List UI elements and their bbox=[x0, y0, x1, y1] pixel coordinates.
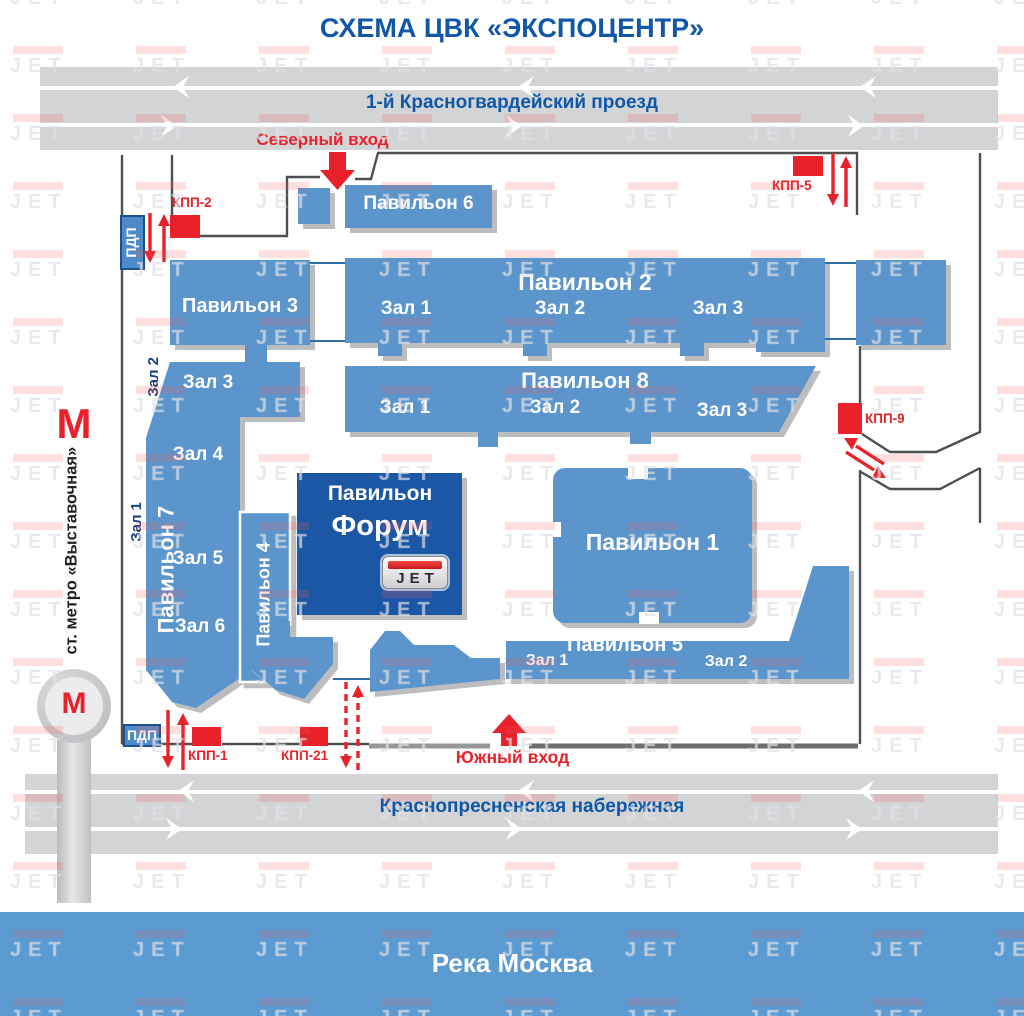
pavilion-8-hall-2-label: Зал 2 bbox=[519, 398, 591, 418]
kpp-2-label: КПП-2 bbox=[172, 196, 212, 210]
pavilion-2-hall-2-label: Зал 2 bbox=[524, 299, 596, 319]
road-top-label: 1-й Красногвардейский проезд bbox=[0, 93, 1024, 113]
kpp-1-label: КПП-1 bbox=[188, 749, 228, 763]
pavilion-2-hall-1-label: Зал 1 bbox=[370, 299, 442, 319]
kpp-21-label: КПП-21 bbox=[281, 749, 328, 763]
pavilion-7-outside-hall-1-label: Зал 1 bbox=[129, 492, 145, 552]
pavilion-7-hall-6-label: Зал 6 bbox=[160, 617, 240, 637]
road-bottom-label: Краснопресненская набережная bbox=[20, 797, 1024, 817]
pavilion-1-notch bbox=[628, 466, 648, 479]
kpp-21-marker bbox=[300, 727, 328, 746]
pavilion-4-label: Павильон 4 bbox=[255, 514, 274, 674]
kpp-2-marker bbox=[170, 215, 200, 238]
pavilion-1-notch bbox=[639, 612, 659, 624]
pdp-north-badge: ПДП bbox=[120, 215, 145, 270]
pavilion-1-label: Павильон 1 bbox=[553, 530, 752, 554]
pavilion-8-hall-3-label: Зал 3 bbox=[686, 401, 758, 421]
jet-logo-bar bbox=[388, 561, 442, 569]
pavilion-8-hall-1-label: Зал 1 bbox=[369, 398, 441, 418]
pavilion-8-tab bbox=[478, 432, 498, 447]
pavilion-forum-top-label: Павильон bbox=[299, 483, 461, 505]
north-entrance-arrow-icon bbox=[320, 152, 355, 190]
jet-logo: JET bbox=[382, 556, 448, 589]
south-entrance-arrow-icon bbox=[492, 714, 526, 746]
jet-logo-text: JET bbox=[383, 570, 447, 587]
kpp-9-marker bbox=[838, 403, 862, 434]
pavilion-2-east-wing-shape bbox=[856, 260, 946, 345]
page-title: СХЕМА ЦВК «ЭКСПОЦЕНТР» bbox=[0, 14, 1024, 42]
pavilion-6-label: Павильон 6 bbox=[345, 194, 492, 214]
metro-station-label: ст. метро «Выставочная» bbox=[63, 441, 80, 661]
pavilion-6-annex-shape bbox=[298, 188, 330, 224]
pavilion-2-hall-3-label: Зал 3 bbox=[682, 299, 754, 319]
metro-m-icon: М bbox=[50, 402, 98, 446]
pavilion-7-hall-3-label: Зал 3 bbox=[168, 373, 248, 393]
pavilion-7-hall-5-label: Зал 5 bbox=[158, 549, 238, 569]
pavilion-7-label: Павильон 7 bbox=[154, 460, 177, 680]
pavilion-7-outside-hall-2-label: Зал 2 bbox=[146, 347, 162, 407]
north-entrance-label: Северный вход bbox=[230, 131, 415, 149]
expocentre-scheme: М М ст. метро «Выставочная» СХЕМА ЦВК «Э… bbox=[0, 0, 1024, 1016]
kpp-9-label: КПП-9 bbox=[865, 412, 905, 426]
kpp-5-marker bbox=[793, 156, 823, 176]
metro-passage bbox=[57, 733, 91, 903]
pavilion-3-label: Павильон 3 bbox=[170, 296, 310, 317]
pavilion-5-hall-1-label: Зал 1 bbox=[516, 653, 578, 670]
pavilion-5-hall-2-label: Зал 2 bbox=[695, 654, 757, 671]
kpp-5-label: КПП-5 bbox=[772, 179, 812, 193]
kpp-1-marker bbox=[192, 727, 221, 746]
pavilion-2-label: Павильон 2 bbox=[400, 270, 770, 294]
pavilion-7-tab bbox=[245, 345, 267, 363]
pavilion-7-hall-4-label: Зал 4 bbox=[158, 445, 238, 465]
pdp-south-badge: ПДП bbox=[123, 724, 161, 747]
pavilion-8-label: Павильон 8 bbox=[400, 369, 770, 392]
south-entrance-label: Южный вход bbox=[440, 748, 585, 766]
river-label: Река Москва bbox=[0, 950, 1024, 977]
service-building-shape bbox=[370, 631, 500, 692]
metro-m-icon: М bbox=[39, 688, 109, 720]
pavilion-forum-label: Форум bbox=[299, 511, 461, 541]
pavilion-8-tab bbox=[630, 432, 651, 444]
